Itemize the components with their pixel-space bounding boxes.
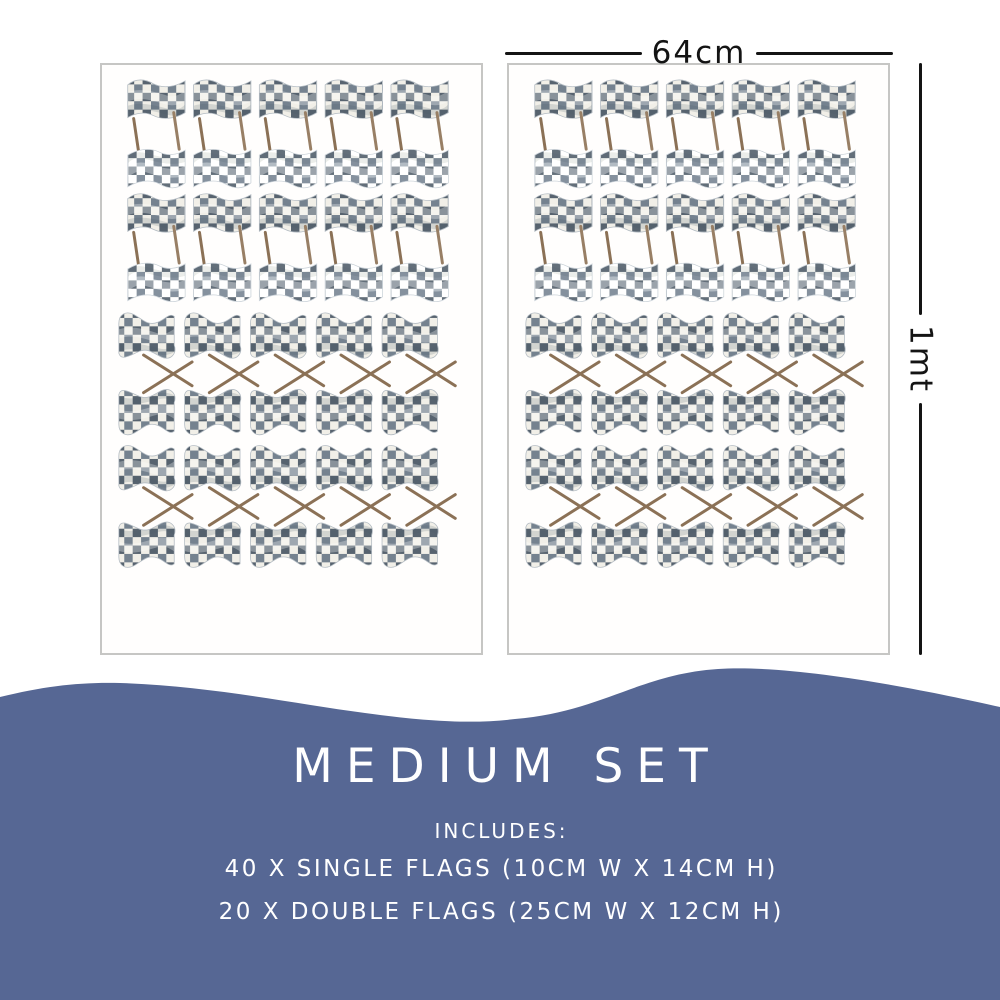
double-flag-decal [589,446,665,568]
height-dimension: 1mt [901,63,939,655]
decal-sheet-right [507,63,890,655]
width-dimension: 64cm [505,33,893,73]
decal-sheet-left-art [102,65,481,653]
single-flags-spec: 40 X SINGLE FLAGS (10CM W X 14CM H) [3,853,1000,886]
double-flag-decal [313,313,389,435]
double-flag-decal [786,313,862,435]
double-flag-decal [786,446,862,568]
double-flag-decal [247,446,323,568]
double-flag-decal [654,446,730,568]
double-flag-decal [523,446,599,568]
dimension-line [919,63,922,315]
double-flag-decal [720,446,796,568]
dimension-line [756,52,893,55]
double-flag-decal [182,446,258,568]
dimension-line [919,403,922,655]
dimension-line [505,52,642,55]
decal-sheet-left [100,63,483,655]
double-flag-decal [654,313,730,435]
product-title: MEDIUM SET [13,741,1000,793]
double-flag-decal [379,313,455,435]
double-flag-decal [182,313,258,435]
double-flag-decal [523,313,599,435]
double-flags-spec: 20 X DOUBLE FLAGS (25CM W X 12CM H) [3,896,1000,929]
height-dimension-label: 1mt [905,325,936,393]
product-infographic: 64cm 1mt MEDIUM SET INCLUDES: 40 X SINGL… [0,0,1000,1000]
double-flag-decal [589,313,665,435]
double-flag-decal [116,313,192,435]
double-flag-decal [379,446,455,568]
caption-block: MEDIUM SET INCLUDES: 40 X SINGLE FLAGS (… [0,741,1000,929]
double-flag-decal [247,313,323,435]
double-flag-decal [313,446,389,568]
width-dimension-label: 64cm [652,38,747,69]
double-flag-decal [720,313,796,435]
decal-sheet-right-art [509,65,888,653]
double-flag-decal [116,446,192,568]
includes-label: INCLUDES: [3,819,1000,843]
footer-wave-section: MEDIUM SET INCLUDES: 40 X SINGLE FLAGS (… [0,655,1000,1000]
